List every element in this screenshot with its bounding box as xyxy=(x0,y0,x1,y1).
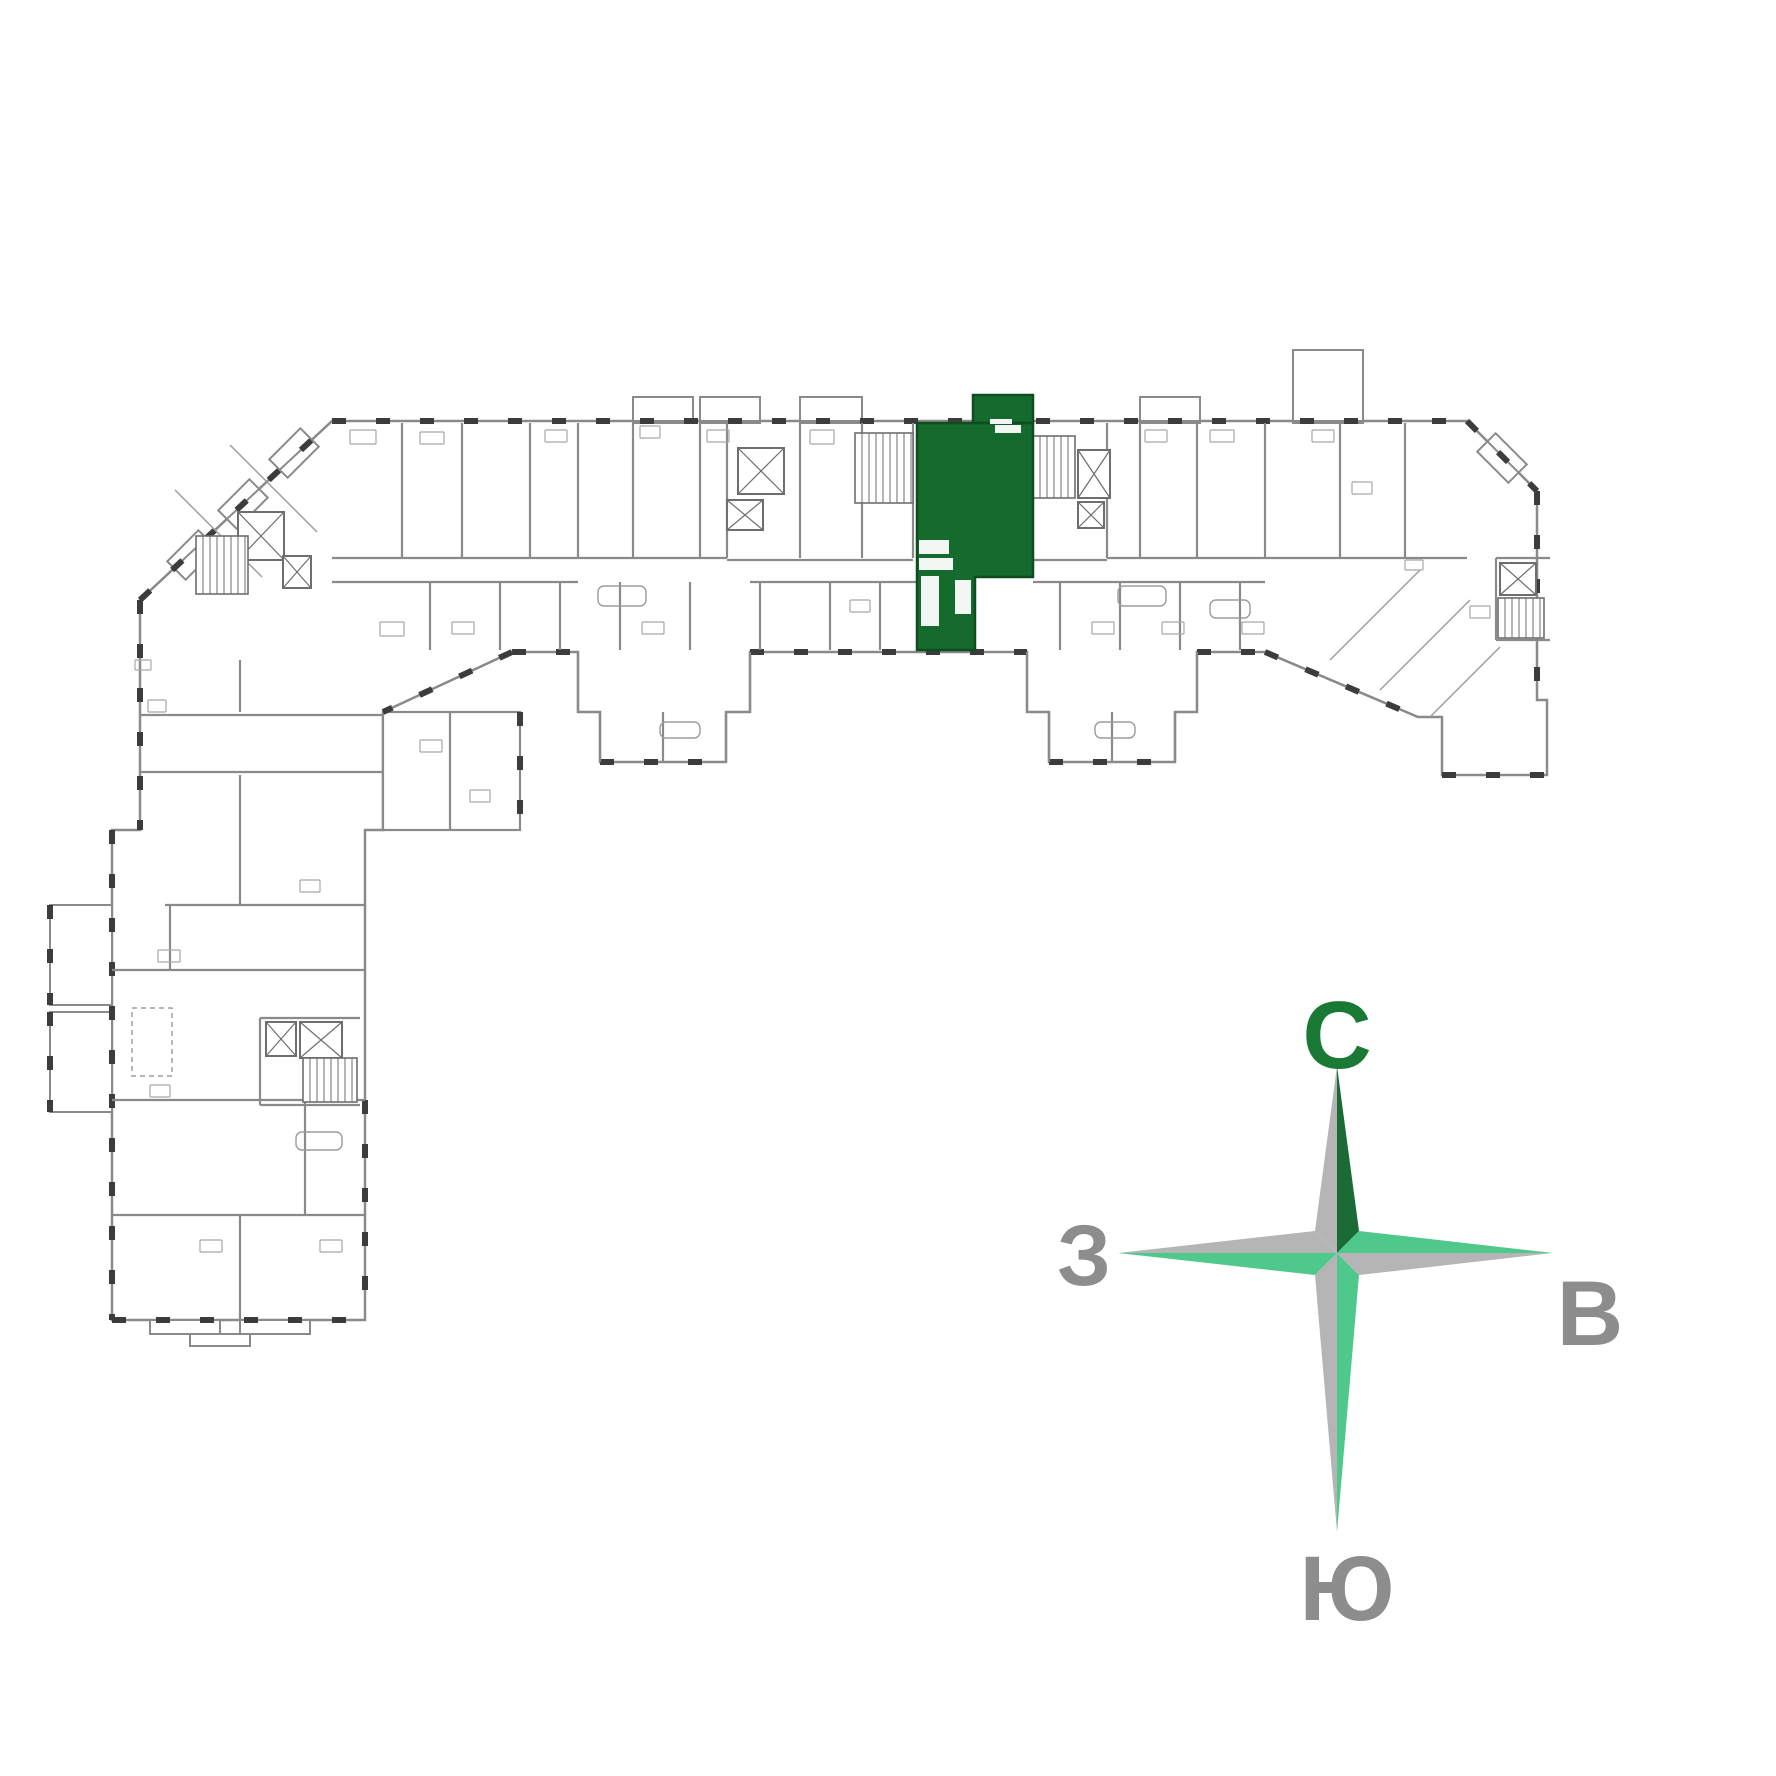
fixture xyxy=(919,540,949,554)
selected-apartment-balcony xyxy=(973,395,1033,423)
fixture xyxy=(995,425,1021,433)
compass-north-arm xyxy=(1315,1066,1337,1253)
compass-label-north: С xyxy=(1302,982,1371,1089)
fixture xyxy=(990,419,1012,424)
compass-south-arm xyxy=(1337,1253,1359,1532)
balcony-bay xyxy=(800,397,862,423)
compass-rose: СЮЗВ xyxy=(1057,982,1623,1640)
balcony-bay xyxy=(1293,350,1363,423)
staircase xyxy=(303,1058,357,1102)
compass-west-arm xyxy=(1118,1231,1337,1253)
compass-east-arm xyxy=(1337,1231,1553,1253)
building-floor-plan: СЮЗВ xyxy=(0,0,1776,1776)
floorplan-stage: СЮЗВ xyxy=(0,0,1776,1776)
compass-south-arm xyxy=(1315,1253,1337,1532)
balcony-bay xyxy=(50,1012,112,1112)
balcony-bay xyxy=(190,1334,250,1346)
fixture xyxy=(921,576,939,626)
fixture xyxy=(955,580,971,614)
balcony-bay xyxy=(50,905,112,1005)
compass-label-east: В xyxy=(1557,1263,1623,1365)
compass-east-arm xyxy=(1337,1253,1553,1275)
compass-west-arm xyxy=(1118,1253,1337,1275)
fixture xyxy=(919,558,953,570)
staircase xyxy=(196,536,248,594)
compass-label-south: Ю xyxy=(1300,1538,1395,1640)
compass-north-arm xyxy=(1337,1066,1359,1253)
compass-label-west: З xyxy=(1057,1208,1111,1304)
